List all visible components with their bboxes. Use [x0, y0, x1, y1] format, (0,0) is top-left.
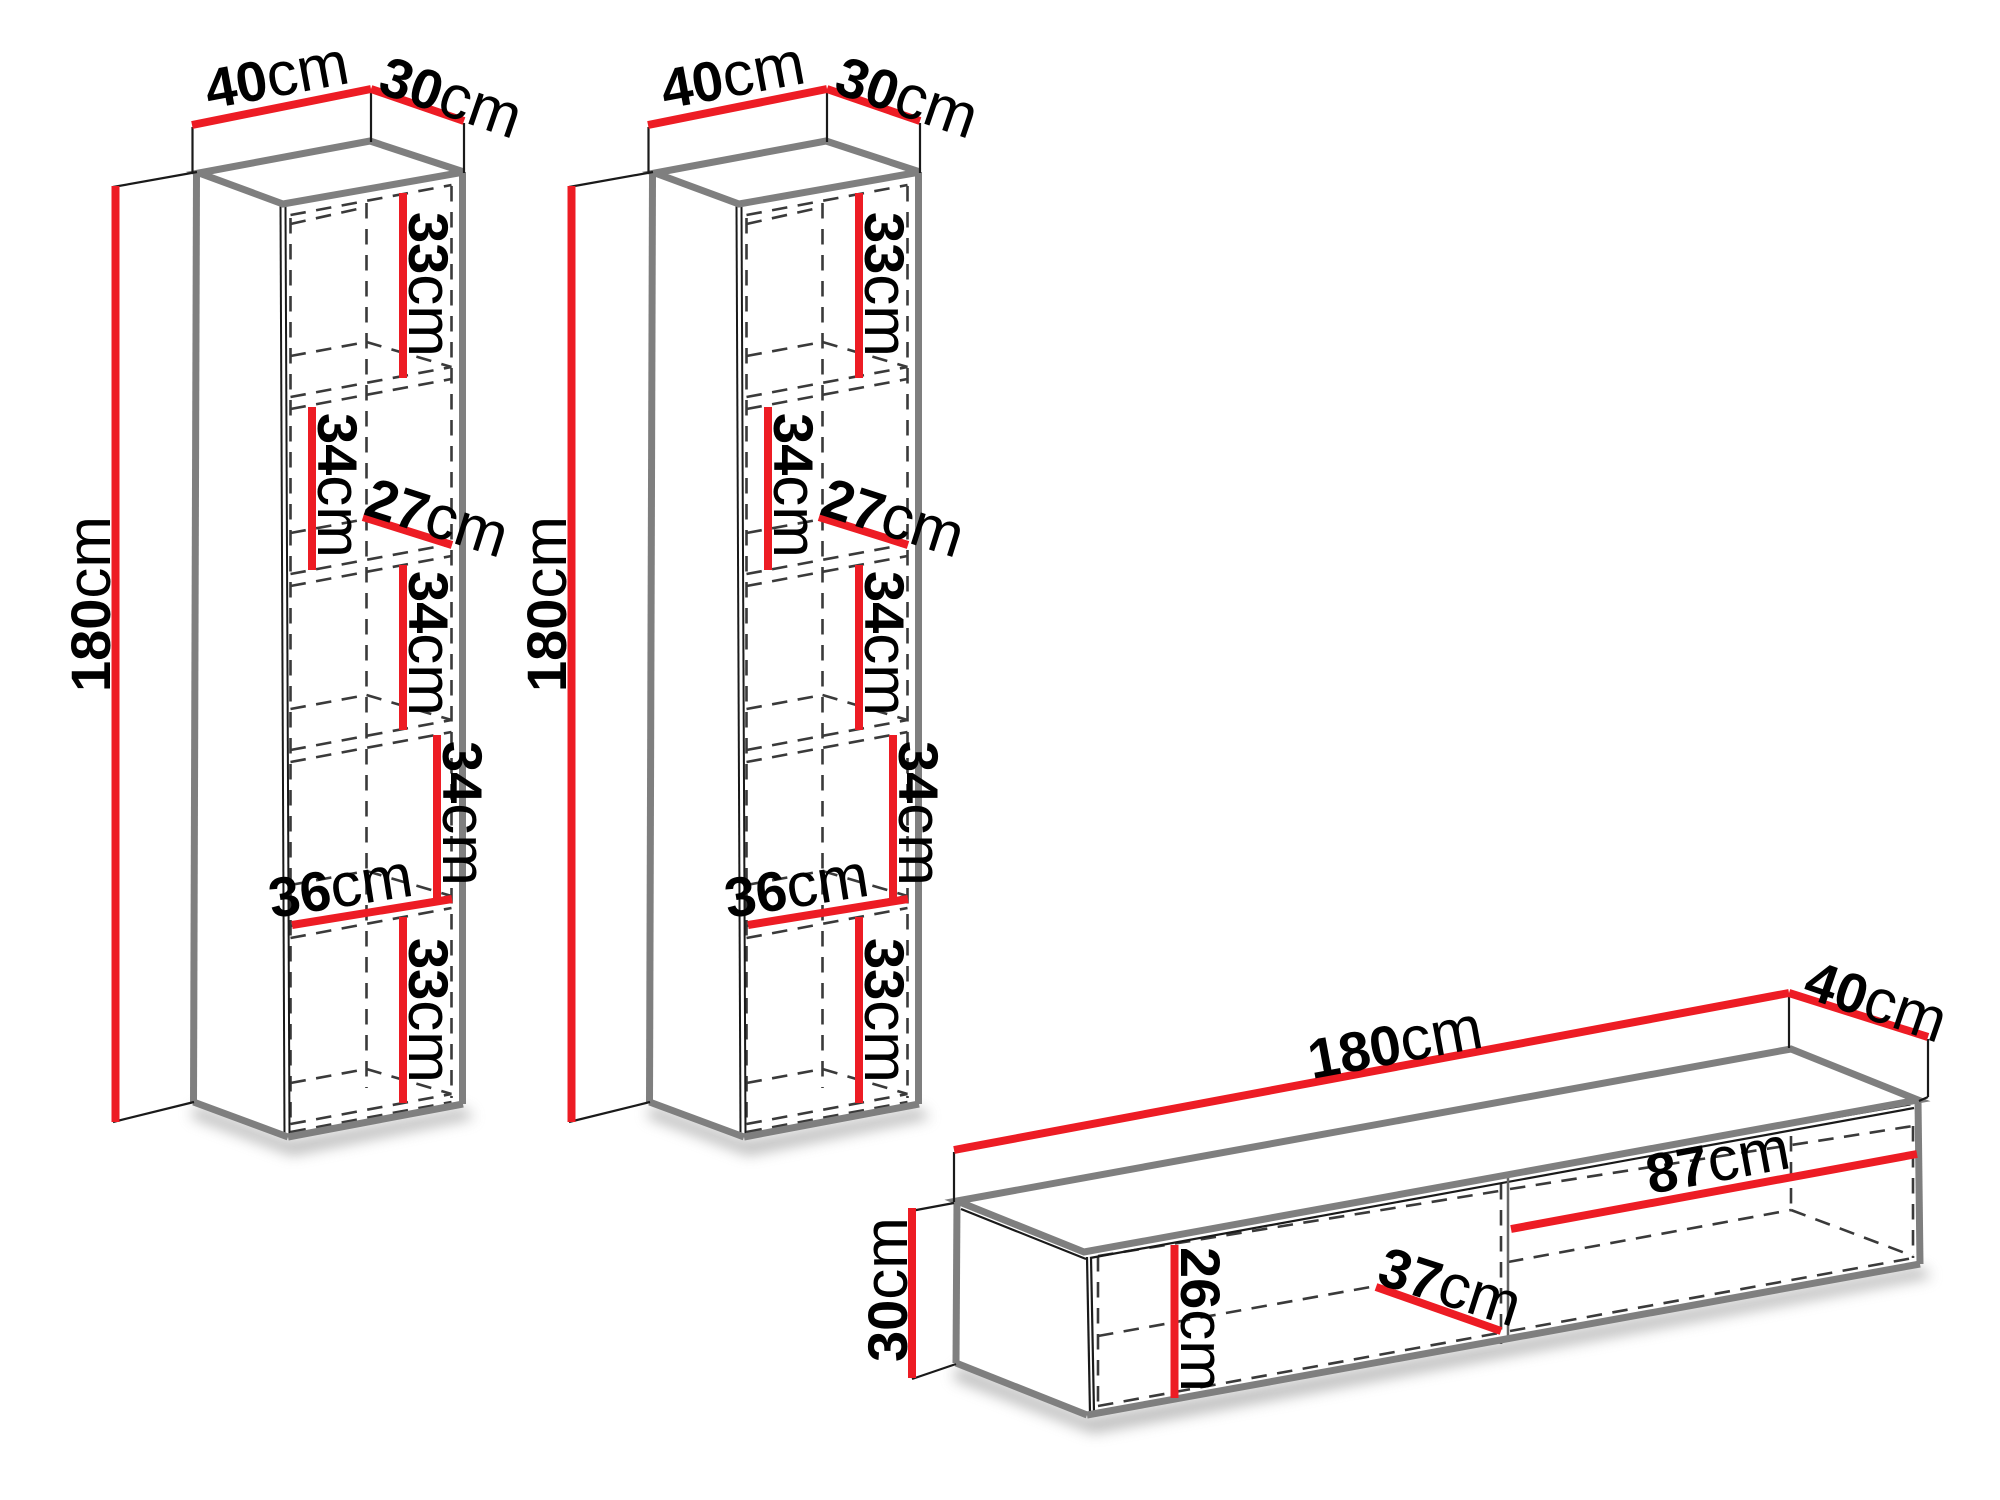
- svg-text:26cm: 26cm: [1167, 1247, 1236, 1392]
- svg-text:30cm: 30cm: [852, 1217, 921, 1362]
